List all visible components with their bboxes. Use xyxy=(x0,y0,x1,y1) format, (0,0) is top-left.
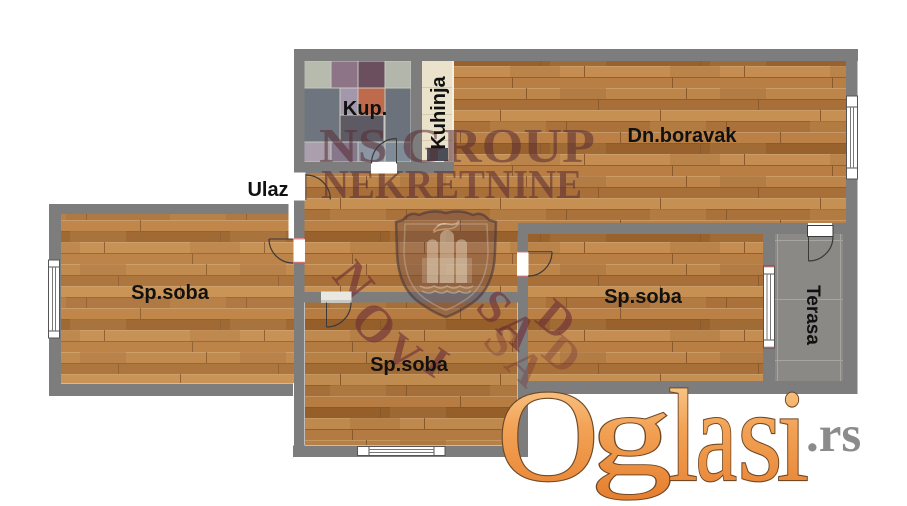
svg-text:Kuhinja: Kuhinja xyxy=(428,75,450,149)
svg-text:Ulaz: Ulaz xyxy=(247,179,288,201)
svg-text:NEKRETNINE: NEKRETNINE xyxy=(321,161,582,207)
svg-text:Sp.soba: Sp.soba xyxy=(131,282,210,304)
svg-text:O: O xyxy=(497,362,599,506)
svg-text:.rs: .rs xyxy=(806,407,861,463)
svg-text:g: g xyxy=(590,369,672,500)
svg-text:Sp.soba: Sp.soba xyxy=(370,354,449,376)
svg-text:Terasa: Terasa xyxy=(802,285,823,345)
svg-text:i: i xyxy=(777,362,809,506)
svg-text:Kup.: Kup. xyxy=(343,98,387,120)
svg-text:l: l xyxy=(668,363,698,506)
svg-text:a: a xyxy=(696,362,738,506)
svg-text:Sp.soba: Sp.soba xyxy=(604,286,683,308)
svg-text:Dn.boravak: Dn.boravak xyxy=(628,125,738,147)
svg-text:s: s xyxy=(738,362,783,506)
